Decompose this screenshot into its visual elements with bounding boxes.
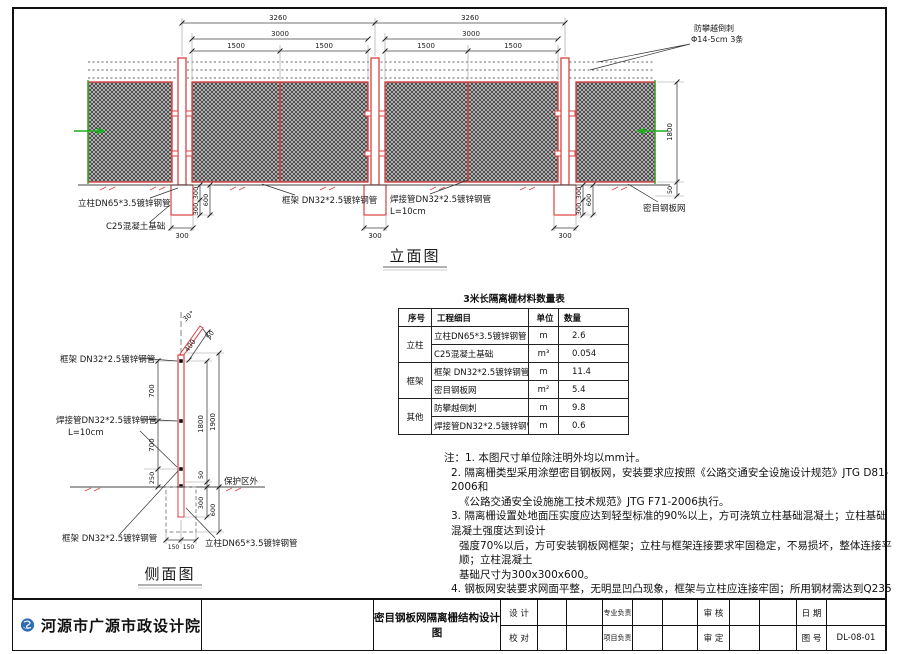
dim-d600: 600 [209, 504, 217, 516]
col-lead-value [632, 600, 662, 650]
col-review-value [729, 600, 759, 650]
material-table: 3米长隔离栅材料数量表 序号 工程细目 单位 数量 立柱 立柱DN65*3.5镀… [398, 291, 630, 435]
table-header-row: 序号 工程细目 单位 数量 [399, 309, 629, 327]
design-value [538, 600, 566, 625]
note-line: 2. 隔离栅类型采用涂塑密目钢板网，安装要求应按照《公路交通安全设施设计规范》J… [451, 466, 892, 495]
col-date: 日 期 图 号 [796, 600, 826, 650]
table-row: 其他 防攀越倒刺 m 9.8 [399, 399, 629, 417]
side-label-weld-len: L=10cm [68, 428, 104, 438]
note-line: 基础尺寸为300x300x600。 [459, 568, 892, 583]
dim-armgap: 50 [205, 329, 216, 340]
pro-lead-label: 专业负责 [603, 600, 632, 625]
dim-gap50: 50 [197, 471, 205, 479]
dim-half-4: 1500 [504, 42, 522, 50]
header-no: 序号 [399, 309, 432, 327]
label-post: 立柱DN65*3.5镀锌钢管 [78, 198, 171, 209]
side-label-zone: 保护区外 [224, 476, 259, 487]
proj-lead-value [633, 625, 662, 650]
dim-fdh-3a: 300 [575, 187, 583, 199]
dim-found-w1: 300 [175, 232, 188, 240]
cell-item: 焊接管DN32*2.5镀锌钢管 [432, 417, 529, 435]
dim-seg-low: 250 [148, 472, 156, 484]
approve-label: 审 定 [698, 625, 729, 650]
dim-w150-1: 150 [168, 544, 180, 551]
cell-qty: 9.8 [559, 399, 629, 417]
dim-height: 1800 [666, 123, 674, 141]
header-unit: 单位 [529, 309, 559, 327]
side-label-post: 立柱DN65*3.5镀锌钢管 [205, 538, 298, 549]
label-frame: 框架 DN32*2.5镀锌钢管 [282, 195, 377, 206]
dim-frame-2: 3000 [462, 30, 480, 38]
cell-unit: m [529, 399, 559, 417]
table-row: 焊接管DN32*2.5镀锌钢管 m 0.6 [399, 417, 629, 435]
dim-span-1: 3260 [269, 14, 287, 22]
cell-qty: 2.6 [559, 327, 629, 345]
elevation-title-text: 立面图 [389, 247, 440, 265]
dim-h1900: 1900 [209, 413, 217, 431]
dim-w150-2: 150 [183, 544, 195, 551]
col-spacer-3 [759, 600, 796, 650]
side-label-weld: 焊接管DN32*2.5镀锌钢管 [56, 415, 157, 426]
table-row: 立柱 立柱DN65*3.5镀锌钢管 m 2.6 [399, 327, 629, 345]
review-value [730, 600, 759, 625]
pro-lead-value [633, 600, 662, 625]
cell-qty: 5.4 [559, 381, 629, 399]
dim-fdh-3b: 300 [575, 203, 583, 215]
cell-qty: 0.054 [559, 345, 629, 363]
note-line: 强度70%以后，方可安装钢板网框架；立柱与框架连接要求牢固稳定，不易损坏，整体连… [459, 539, 892, 568]
side-view: 30° 400 50 700 700 250 1800 50 1900 300 … [56, 309, 298, 588]
side-leader-lines [120, 358, 215, 538]
side-ground [70, 487, 265, 491]
elevation-view: 3260 3260 3000 3000 1500 1500 1500 1500 … [74, 14, 743, 270]
material-table-title: 3米长隔离栅材料数量表 [398, 291, 630, 305]
dim-found-w3: 300 [558, 232, 571, 240]
cell-unit: m³ [529, 345, 559, 363]
dim-found-w2: 300 [368, 232, 381, 240]
design-label: 设 计 [501, 600, 537, 625]
cell-item: 防攀越倒刺 [432, 399, 529, 417]
cell-unit: m² [529, 381, 559, 399]
company-name: 河源市广源市政设计院 [41, 615, 201, 636]
dim-d300: 300 [197, 497, 205, 509]
review-label: 审 核 [698, 600, 729, 625]
note-line: 注：1. 本图尺寸单位除注明外均以mm计。 [444, 451, 892, 466]
drawing-title-cell: 密目钢板网隔离栅结构设计图 [373, 600, 500, 650]
label-barb-1: 防攀越倒刺 [694, 23, 734, 33]
col-design-value [537, 600, 566, 650]
group-kuangjia: 框架 [399, 363, 432, 399]
label-barb-2: Φ14-5cm 3条 [691, 34, 743, 44]
dim-half-1: 1500 [227, 42, 245, 50]
approve-value [730, 625, 759, 650]
company-cell: 河源市广源市政设计院 [13, 600, 201, 650]
cell-qty: 0.6 [559, 417, 629, 435]
cell-unit: m [529, 327, 559, 345]
side-labels: 框架 DN32*2.5镀锌钢管 焊接管DN32*2.5镀锌钢管 L=10cm 保… [56, 354, 298, 549]
label-weld-len: L=10cm [390, 207, 426, 217]
note-line: 3. 隔离栅设置处地面压实度应达到轻型标准的90%以上，方可浇筑立柱基础混凝土；… [451, 509, 892, 538]
label-weld: 焊接管DN32*2.5镀锌钢管 [390, 194, 491, 205]
header-item: 工程细目 [432, 309, 529, 327]
side-title: 侧面图 [138, 565, 202, 588]
cell-item: C25混凝土基础 [432, 345, 529, 363]
drawing-no-label: 图 号 [797, 625, 826, 650]
label-foundation: C25混凝土基础 [106, 221, 165, 232]
proj-lead-label: 项目负责 [603, 625, 632, 650]
elevation-title: 立面图 [383, 247, 447, 270]
drawing-sheet: 3260 3260 3000 3000 1500 1500 1500 1500 … [0, 0, 900, 654]
cell-unit: m [529, 363, 559, 381]
col-date-value: DL-08-01 [826, 600, 885, 650]
col-spacer-2 [662, 600, 697, 650]
header-qty: 数量 [559, 309, 629, 327]
drawing-no-value: DL-08-01 [827, 625, 885, 650]
dim-fdh-1b: 300 [192, 203, 200, 215]
company-logo-icon [20, 608, 35, 642]
side-label-frame-bottom: 框架 DN32*2.5镀锌钢管 [62, 533, 157, 544]
col-review: 审 核 审 定 [697, 600, 729, 650]
cell-item: 密目钢板网 [432, 381, 529, 399]
dim-seg-2: 700 [148, 438, 156, 451]
dim-seg-1: 700 [148, 384, 156, 397]
date-label: 日 期 [797, 600, 826, 625]
table-row: 密目钢板网 m² 5.4 [399, 381, 629, 399]
dim-gap: 50 [666, 186, 674, 194]
title-block: 河源市广源市政设计院 密目钢板网隔离栅结构设计图 设 计 校 对 专业负责 项目… [13, 598, 885, 650]
col-lead: 专业负责 项目负责 [602, 600, 632, 650]
side-label-frame-top: 框架 DN32*2.5镀锌钢管 [60, 354, 155, 365]
col-spacer-1 [566, 600, 602, 650]
cell-unit: m [529, 417, 559, 435]
cell-item: 框架 DN32*2.5镀锌钢管 [432, 363, 529, 381]
drawing-title: 密目钢板网隔离栅结构设计图 [374, 610, 500, 640]
dim-half-2: 1500 [315, 42, 333, 50]
date-value [827, 600, 885, 625]
table-row: C25混凝土基础 m³ 0.054 [399, 345, 629, 363]
col-design: 设 计 校 对 [500, 600, 537, 650]
dim-half-3: 1500 [417, 42, 435, 50]
table-row: 框架 框架 DN32*2.5镀锌钢管 m 11.4 [399, 363, 629, 381]
dim-fd-1: 600 [202, 194, 210, 206]
note-line: 《公路交通安全设施施工技术规范》JTG F71-2006执行。 [459, 495, 892, 510]
dim-fdh-1a: 300 [192, 187, 200, 199]
dim-fd-3: 600 [585, 194, 593, 206]
cell-qty: 11.4 [559, 363, 629, 381]
label-mesh: 密目钢板网 [643, 203, 686, 214]
side-title-text: 侧面图 [144, 565, 195, 583]
side-post-buried [178, 487, 184, 517]
cell-item: 立柱DN65*3.5镀锌钢管 [432, 327, 529, 345]
title-block-empty-cell [201, 600, 373, 650]
dim-frame-1: 3000 [271, 30, 289, 38]
dim-span-2: 3260 [461, 14, 479, 22]
group-lizhu: 立柱 [399, 327, 432, 363]
proof-label: 校 对 [501, 625, 537, 650]
dim-h1800: 1800 [197, 415, 205, 433]
dim-angle: 30° [181, 309, 196, 323]
proof-value [538, 625, 566, 650]
group-qita: 其他 [399, 399, 432, 435]
